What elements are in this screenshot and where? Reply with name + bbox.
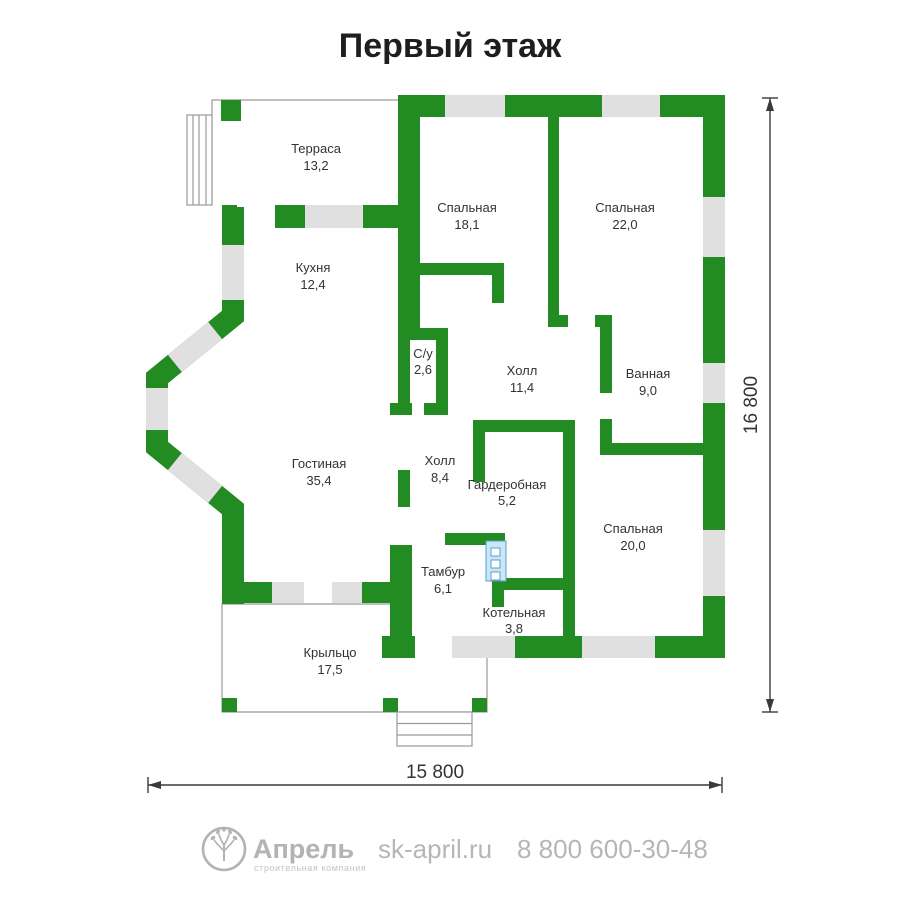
svg-text:13,2: 13,2: [303, 158, 328, 173]
room-label-bedroom-22: Спальная 22,0: [595, 200, 654, 232]
chimney-shaft: [486, 541, 506, 581]
svg-text:Гардеробная: Гардеробная: [468, 477, 547, 492]
porch-pillar: [383, 698, 398, 712]
room-label-living-room: Гостиная 35,4: [292, 456, 347, 488]
svg-text:6,1: 6,1: [434, 581, 452, 596]
svg-text:Крыльцо: Крыльцо: [303, 645, 356, 660]
floor-plan-page: Первый этаж: [0, 0, 900, 900]
svg-text:5,2: 5,2: [498, 493, 516, 508]
svg-text:Ванная: Ванная: [626, 366, 671, 381]
room-label-bedroom-18: Спальная 18,1: [437, 200, 496, 232]
porch-outline: [222, 604, 487, 746]
svg-text:Котельная: Котельная: [483, 605, 546, 620]
svg-text:9,0: 9,0: [639, 383, 657, 398]
svg-text:2,6: 2,6: [414, 362, 432, 377]
svg-text:Спальная: Спальная: [603, 521, 662, 536]
svg-text:Гостиная: Гостиная: [292, 456, 347, 471]
room-label-porch: Крыльцо 17,5: [303, 645, 356, 677]
svg-text:3,8: 3,8: [505, 621, 523, 636]
floor-plan-drawing: Первый этаж: [0, 0, 900, 900]
svg-text:12,4: 12,4: [300, 277, 325, 292]
svg-text:18,1: 18,1: [454, 217, 479, 232]
room-label-hall-8: Холл 8,4: [425, 453, 456, 485]
dimension-vertical: 16 800: [741, 98, 778, 712]
svg-text:Терраса: Терраса: [291, 141, 342, 156]
bay-window-wall: [157, 207, 233, 604]
footer: Апрель строительная компания sk-april.ru…: [203, 826, 708, 873]
front-door-opening: [415, 636, 452, 658]
dimension-horizontal: 15 800: [148, 762, 722, 793]
porch-pillar: [472, 698, 487, 712]
dimension-height-label: 16 800: [741, 376, 762, 434]
porch-pillar: [222, 698, 237, 712]
svg-text:22,0: 22,0: [612, 217, 637, 232]
svg-text:Кухня: Кухня: [296, 260, 331, 275]
svg-text:Тамбур: Тамбур: [421, 564, 465, 579]
porch-door-opening: [304, 582, 332, 603]
room-label-vestibule: Тамбур 6,1: [421, 564, 465, 596]
dimension-width-label: 15 800: [406, 762, 464, 783]
svg-text:Холл: Холл: [425, 453, 456, 468]
svg-text:11,4: 11,4: [510, 380, 534, 395]
room-label-wc: С/у 2,6: [413, 346, 433, 377]
entry-steps: [397, 712, 472, 746]
room-label-bedroom-20: Спальная 20,0: [603, 521, 662, 553]
room-label-bathroom: Ванная 9,0: [626, 366, 671, 398]
page-title: Первый этаж: [339, 27, 562, 65]
room-label-boiler-room: Котельная 3,8: [483, 605, 546, 636]
svg-text:Спальная: Спальная: [437, 200, 496, 215]
room-label-hall-11: Холл 11,4: [507, 363, 538, 395]
room-label-terrace: Терраса 13,2: [291, 141, 342, 173]
svg-text:8,4: 8,4: [431, 470, 449, 485]
svg-text:20,0: 20,0: [620, 538, 645, 553]
room-label-kitchen: Кухня 12,4: [296, 260, 331, 292]
svg-text:35,4: 35,4: [306, 473, 331, 488]
svg-text:Спальная: Спальная: [595, 200, 654, 215]
svg-text:17,5: 17,5: [317, 662, 342, 677]
website-link[interactable]: sk-april.ru: [378, 834, 492, 864]
brand-tagline: строительная компания: [254, 863, 366, 873]
phone-number[interactable]: 8 800 600-30-48: [517, 834, 708, 864]
room-label-wardrobe: Гардеробная 5,2: [468, 477, 547, 508]
svg-text:С/у: С/у: [413, 346, 433, 361]
svg-text:Холл: Холл: [507, 363, 538, 378]
company-logo: [203, 826, 245, 870]
brand-name: Апрель: [253, 834, 354, 864]
